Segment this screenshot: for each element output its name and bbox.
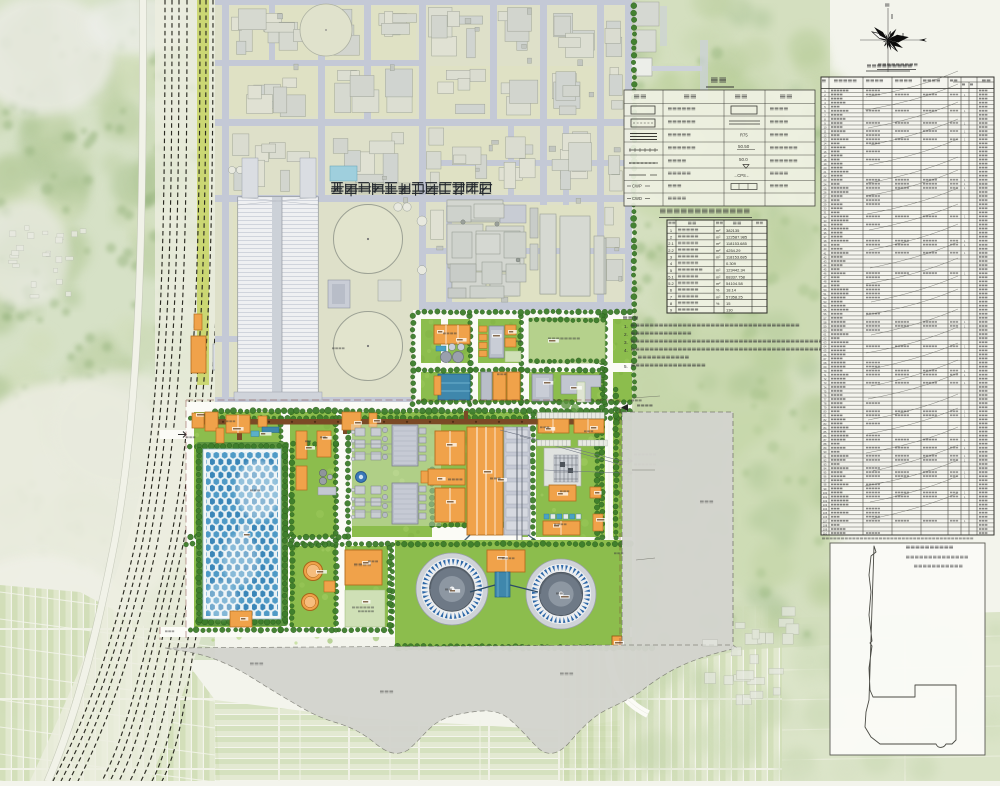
svg-text:110: 110 xyxy=(823,531,828,535)
svg-text:15: 15 xyxy=(726,301,731,306)
svg-text:5.: 5. xyxy=(624,364,628,369)
svg-text:1.: 1. xyxy=(624,324,628,329)
svg-text:m²: m² xyxy=(716,255,721,259)
svg-text:123442.34: 123442.34 xyxy=(726,268,746,273)
svg-text:102: 102 xyxy=(823,499,828,503)
svg-text:4254.29: 4254.29 xyxy=(726,248,741,253)
svg-text:0.309: 0.309 xyxy=(726,261,737,266)
svg-text:54104.58: 54104.58 xyxy=(726,281,743,286)
svg-text:122587.985: 122587.985 xyxy=(726,234,748,239)
svg-text:m²: m² xyxy=(716,295,721,299)
svg-text:CWD: CWD xyxy=(632,196,642,201)
svg-text:109: 109 xyxy=(823,527,828,531)
svg-text:m²: m² xyxy=(716,229,721,233)
svg-text:130: 130 xyxy=(726,308,733,313)
svg-text:68337.758: 68337.758 xyxy=(726,274,746,279)
svg-text:103: 103 xyxy=(823,503,828,507)
svg-text:m²: m² xyxy=(716,242,721,246)
svg-text:50.0: 50.0 xyxy=(739,157,748,162)
svg-text:→CPS←: →CPS← xyxy=(733,173,750,178)
svg-text:106: 106 xyxy=(823,515,828,519)
svg-text:104: 104 xyxy=(823,507,828,511)
svg-text:5.2: 5.2 xyxy=(668,281,674,286)
svg-text:107: 107 xyxy=(823,519,828,523)
svg-text:m²: m² xyxy=(716,269,721,273)
svg-text:118153.685: 118153.685 xyxy=(726,254,748,259)
svg-text:m²: m² xyxy=(716,282,721,286)
svg-text:18.14: 18.14 xyxy=(726,288,737,293)
svg-text:4.: 4. xyxy=(624,348,628,353)
svg-text:CWP: CWP xyxy=(632,184,642,189)
svg-text:5.1: 5.1 xyxy=(668,274,674,279)
svg-text:m²: m² xyxy=(716,275,721,279)
svg-text:50.50: 50.50 xyxy=(738,144,750,149)
svg-text:105: 105 xyxy=(823,511,828,515)
svg-text:382135: 382135 xyxy=(726,228,740,233)
svg-text:2.: 2. xyxy=(624,332,628,337)
svg-text:3.: 3. xyxy=(624,340,628,345)
svg-text:2.2: 2.2 xyxy=(668,248,674,253)
svg-text:R75: R75 xyxy=(740,133,748,138)
svg-text:101: 101 xyxy=(823,495,828,499)
svg-text:118153.685: 118153.685 xyxy=(726,241,748,246)
svg-text:57358.25: 57358.25 xyxy=(726,294,743,299)
svg-text:m²: m² xyxy=(716,235,721,239)
svg-text:2.1: 2.1 xyxy=(668,241,674,246)
svg-text:m²: m² xyxy=(716,249,721,253)
svg-text:100: 100 xyxy=(823,491,828,495)
svg-text:108: 108 xyxy=(823,523,828,527)
